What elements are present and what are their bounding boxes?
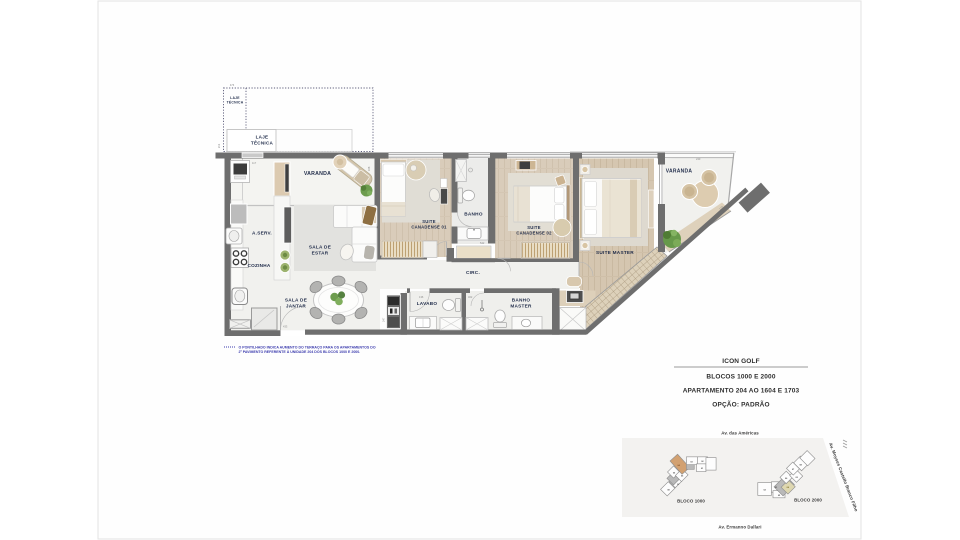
svg-text:240: 240 xyxy=(696,157,701,161)
svg-text:BLOCO 2000: BLOCO 2000 xyxy=(794,498,822,503)
svg-text:168: 168 xyxy=(367,166,371,171)
svg-text:476: 476 xyxy=(230,83,235,87)
svg-text:BLOCOS 1000 E 2000: BLOCOS 1000 E 2000 xyxy=(706,374,775,381)
svg-text:322: 322 xyxy=(468,295,473,299)
svg-text:LAJE: LAJE xyxy=(230,96,240,100)
svg-text:MASTER: MASTER xyxy=(510,304,532,309)
svg-text:CANADENSE 02: CANADENSE 02 xyxy=(516,231,552,236)
svg-text:117: 117 xyxy=(252,161,257,165)
svg-text:JANTAR: JANTAR xyxy=(286,304,307,309)
svg-text:136: 136 xyxy=(419,295,424,299)
svg-text:ESTAR: ESTAR xyxy=(312,251,329,256)
svg-text:VARANDA: VARANDA xyxy=(666,169,693,175)
svg-text:BLOCO 1000: BLOCO 1000 xyxy=(677,499,705,504)
svg-text:CANADENSE 01: CANADENSE 01 xyxy=(411,225,447,230)
svg-text:ICON GOLF: ICON GOLF xyxy=(722,358,759,365)
svg-text:Av. Ermanno Dallari: Av. Ermanno Dallari xyxy=(718,525,761,530)
svg-text:LAVABO: LAVABO xyxy=(417,301,438,306)
svg-text:VARANDA: VARANDA xyxy=(304,171,331,177)
svg-text:SUITE: SUITE xyxy=(527,225,541,230)
svg-text:213: 213 xyxy=(217,143,221,148)
svg-text:SUITE MASTER: SUITE MASTER xyxy=(596,250,634,255)
svg-text:Av. das Américas: Av. das Américas xyxy=(721,431,759,436)
svg-text:SALA DE: SALA DE xyxy=(285,298,307,303)
svg-text:CIRC.: CIRC. xyxy=(466,270,480,275)
svg-text:O PONTILHADO INDICA AUMENTO DO: O PONTILHADO INDICA AUMENTO DO TERRAÇO P… xyxy=(239,346,376,350)
svg-text:542: 542 xyxy=(480,241,485,245)
svg-text:COZINHA: COZINHA xyxy=(247,263,270,268)
svg-text:APARTAMENTO 204 AO 1604 E 1703: APARTAMENTO 204 AO 1604 E 1703 xyxy=(683,388,800,395)
svg-text:TÉCNICA: TÉCNICA xyxy=(251,139,274,146)
svg-text:2º PAVIMENTO REFERENTE À UNIDA: 2º PAVIMENTO REFERENTE À UNIDADE 204 DOS… xyxy=(239,349,361,354)
svg-text:SUITE: SUITE xyxy=(422,219,436,224)
svg-text:A.SERV.: A.SERV. xyxy=(252,231,272,236)
svg-text:OPÇÃO: PADRÃO: OPÇÃO: PADRÃO xyxy=(712,400,769,409)
svg-text:BANHO: BANHO xyxy=(464,212,483,217)
svg-text:SALA DE: SALA DE xyxy=(309,245,331,250)
svg-text:BANHO: BANHO xyxy=(512,298,531,303)
svg-text:433: 433 xyxy=(283,325,288,329)
svg-text:TÉCNICA: TÉCNICA xyxy=(227,100,244,105)
svg-text:LAJE: LAJE xyxy=(256,135,269,140)
svg-text:247: 247 xyxy=(382,317,386,322)
